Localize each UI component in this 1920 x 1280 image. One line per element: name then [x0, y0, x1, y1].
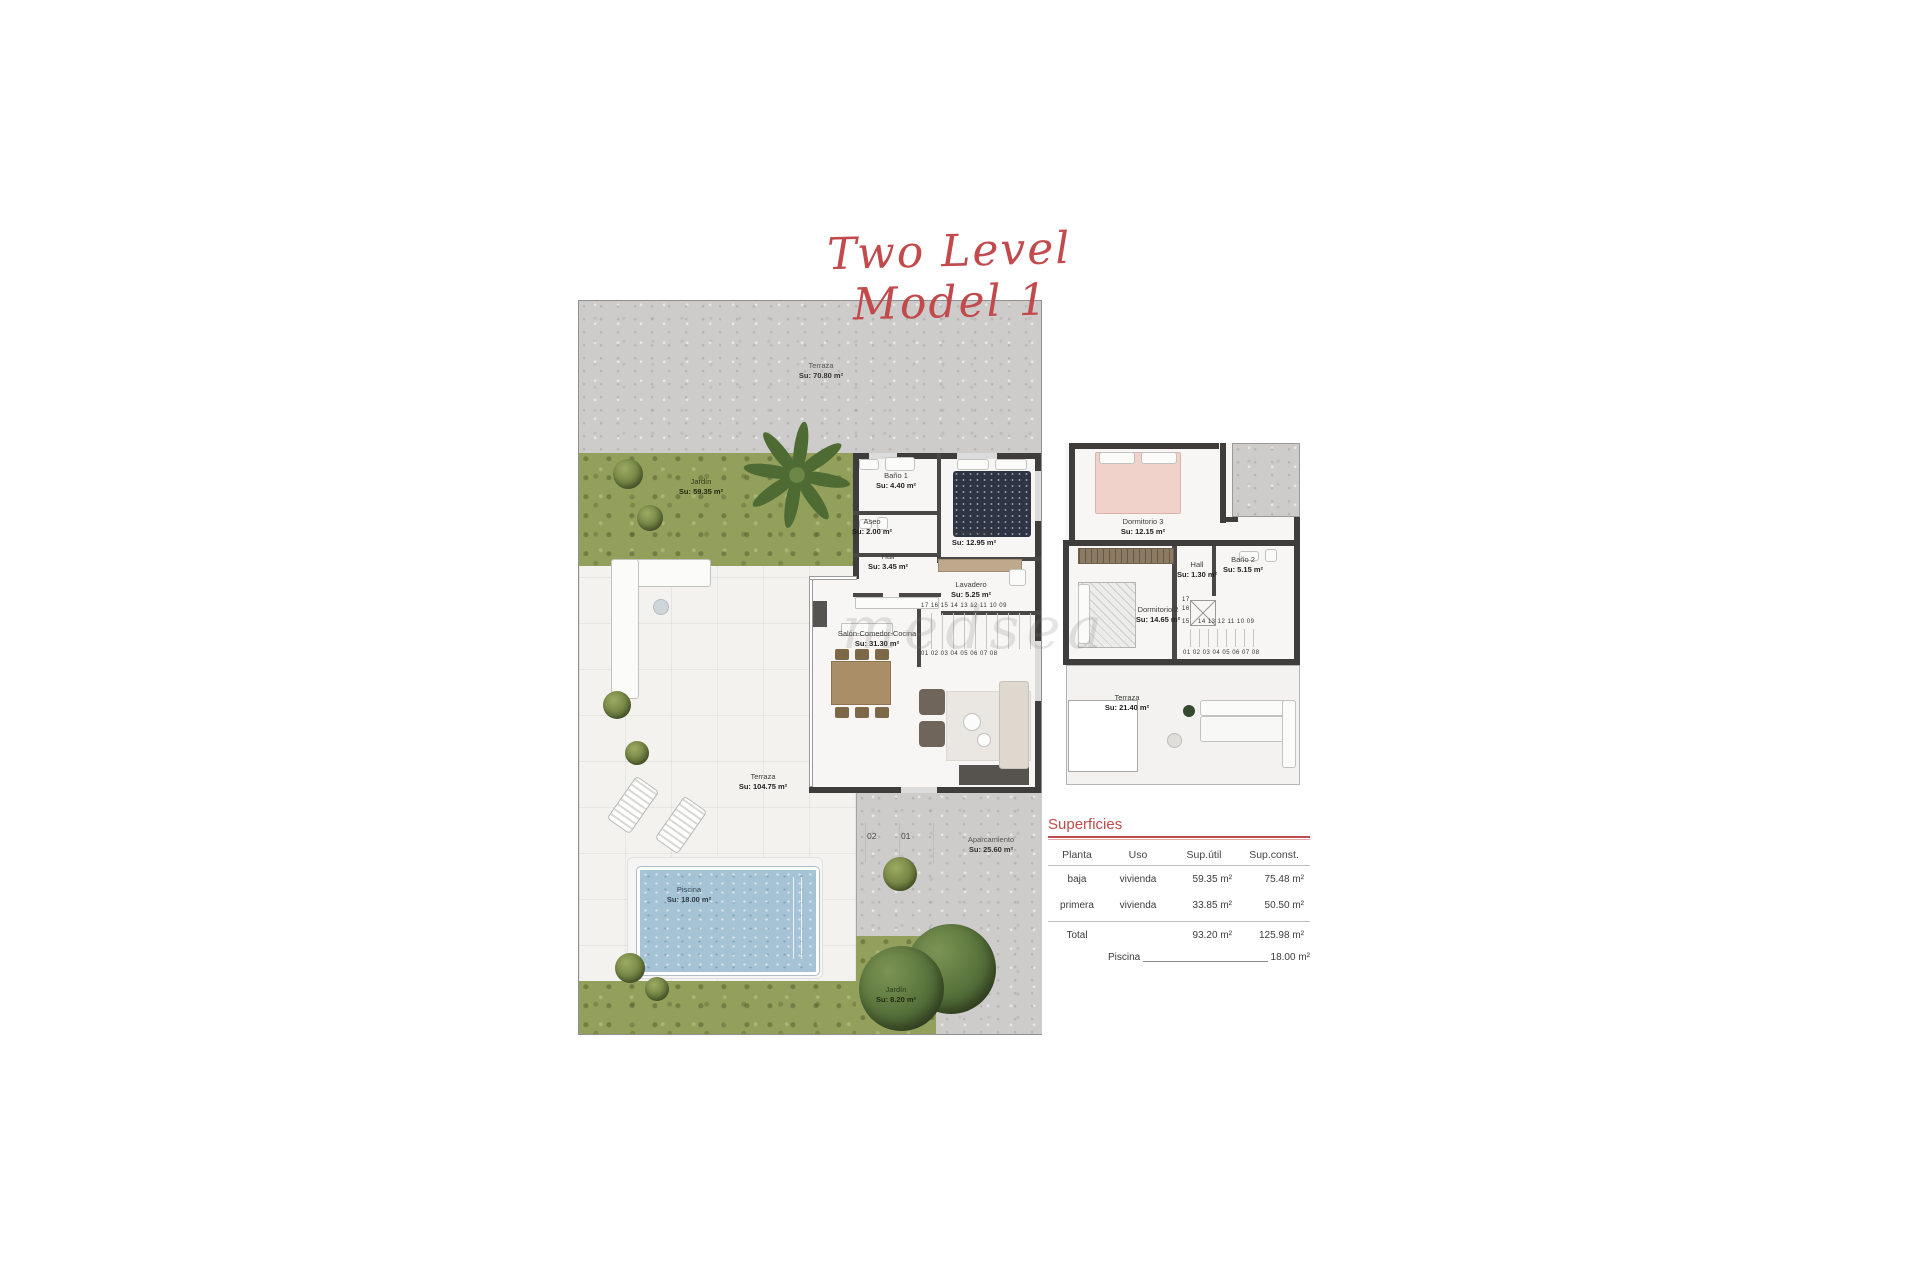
side-table — [1167, 733, 1182, 748]
partition-wall — [853, 511, 941, 515]
bush — [603, 691, 631, 719]
armchair — [919, 689, 945, 715]
table-rule — [1048, 836, 1310, 838]
pool-step-line — [793, 877, 794, 959]
entry-door — [901, 787, 937, 793]
bush — [625, 741, 649, 765]
cell-sup-util: 33.85 m² — [1170, 892, 1238, 918]
coffee-table — [963, 713, 981, 731]
pillow — [1141, 452, 1177, 464]
room-label-terraza2: TerrazaSu: 21.40 m² — [1079, 693, 1175, 713]
col-header-sup-const: Sup.const. — [1238, 846, 1310, 866]
pillow — [957, 459, 989, 470]
total-row: Total 93.20 m² 125.98 m² — [1048, 922, 1310, 941]
dining-table — [831, 661, 891, 705]
outdoor-sofa — [1282, 700, 1296, 768]
staircase — [1182, 629, 1260, 647]
sliding-glass-door — [809, 576, 857, 580]
room-label-aseo: AseoSu: 2.00 m² — [841, 517, 903, 537]
bush — [637, 505, 663, 531]
room-label-salon: Salón-Comedor-CocinaSu: 31.30 m² — [817, 629, 937, 649]
chair — [835, 707, 849, 718]
ff-roof-patch — [1232, 443, 1300, 517]
cell-sup-const: 50.50 m² — [1238, 892, 1310, 918]
piscina-value: 18.00 m² — [1271, 952, 1310, 963]
armchair — [919, 721, 945, 747]
window — [1035, 641, 1041, 701]
col-header-uso: Uso — [1106, 846, 1170, 866]
page-title: Two Level Model 1 — [769, 221, 1132, 332]
wardrobe — [1078, 548, 1174, 564]
outdoor-sofa — [611, 559, 639, 699]
pillow — [1099, 452, 1135, 464]
wall — [1069, 443, 1075, 546]
bush — [613, 459, 643, 489]
room-label-bano1: Baño 1Su: 4.40 m² — [856, 471, 936, 491]
piscina-underline — [1143, 951, 1267, 962]
bush — [615, 953, 645, 983]
room-label-terraza-main: TerrazaSu: 104.75 m² — [703, 772, 823, 792]
piscina-row: Piscina 18.00 m² — [1108, 951, 1310, 963]
wall — [1294, 517, 1300, 665]
stair-numbers-bottom: 01 02 03 04 05 06 07 08 — [921, 651, 1033, 657]
col-header-planta: Planta — [1048, 846, 1106, 866]
total-sup-const: 125.98 m² — [1238, 930, 1310, 941]
bush — [645, 977, 669, 1001]
parking-space-number: 01 — [901, 831, 910, 841]
bush — [883, 857, 917, 891]
chair — [875, 707, 889, 718]
bathtub — [885, 457, 915, 471]
side-table — [653, 599, 669, 615]
surface-table-title: Superficies — [1048, 816, 1310, 836]
surface-table-grid: Planta Uso Sup.útil Sup.const. baja vivi… — [1048, 846, 1310, 918]
room-label-jardin2: JardínSu: 8.20 m² — [856, 985, 936, 1005]
floorplan-sheet: Two Level Model 1 medsea 02 01 — [0, 0, 1920, 1280]
plant-pot — [1183, 705, 1195, 717]
palm-tree — [741, 419, 853, 531]
wall — [1063, 540, 1069, 665]
room-label-terraza-top: TerrazaSu: 70.80 m² — [761, 361, 881, 381]
wall — [1220, 517, 1238, 522]
coffee-table — [977, 733, 991, 747]
cell-planta: baja — [1048, 866, 1106, 892]
total-sup-util: 93.20 m² — [1170, 930, 1238, 941]
chair — [855, 707, 869, 718]
col-header-sup-util: Sup.útil — [1170, 846, 1238, 866]
chair — [835, 649, 849, 660]
ground-floor-plan: 02 01 17 16 15 14 13 12 11 10 09 01 0 — [578, 300, 1042, 1035]
chair — [875, 649, 889, 660]
cell-sup-util: 59.35 m² — [1170, 866, 1238, 892]
sun-lounger — [607, 776, 660, 835]
surface-table: Superficies Planta Uso Sup.útil Sup.cons… — [1048, 816, 1310, 963]
stair-numbers-mid: 14 13 12 11 10 09 — [1198, 619, 1256, 625]
pillow — [1078, 584, 1090, 644]
parking-divider-line — [865, 823, 866, 863]
wall — [1063, 540, 1300, 546]
cell-planta: primera — [1048, 892, 1106, 918]
sink — [859, 459, 879, 470]
wall — [1220, 443, 1226, 523]
wall — [1063, 659, 1300, 665]
sun-lounger — [655, 796, 708, 855]
parking-divider-line — [933, 823, 934, 863]
parking-space-number: 02 — [867, 831, 876, 841]
pool — [637, 867, 819, 975]
pillow — [995, 459, 1027, 470]
sofa — [999, 681, 1029, 769]
total-label: Total — [1048, 930, 1106, 941]
room-label-dormitorio1: Dormitorio 1Su: 12.95 m² — [934, 528, 1014, 548]
room-label-bano2: Baño 2Su: 5.15 m² — [1210, 555, 1276, 575]
stair-numbers-bottom: 01 02 03 04 05 06 07 08 — [1183, 650, 1253, 656]
room-label-hall: HallSu: 3.45 m² — [858, 552, 918, 572]
stair-number: 17 — [1182, 597, 1190, 603]
room-label-aparcamiento: AparcamientoSu: 25.60 m² — [941, 835, 1041, 855]
piscina-label: Piscina — [1108, 952, 1140, 963]
room-label-lavadero: LavaderoSu: 5.25 m² — [931, 580, 1011, 600]
cell-uso: vivienda — [1106, 892, 1170, 918]
fridge — [813, 601, 827, 627]
first-floor-plan: 17 16 15 14 13 12 11 10 09 01 02 03 04 0… — [1063, 443, 1302, 788]
room-label-dormitorio3: Dormitorio 3Su: 12.15 m² — [1095, 517, 1191, 537]
window — [1035, 471, 1041, 521]
wall — [1069, 443, 1219, 449]
room-label-dormitorio2: Dormitorio 2Su: 14.65 m² — [1115, 605, 1201, 625]
stair-numbers-top: 17 16 15 14 13 12 11 10 09 — [921, 603, 1035, 609]
room-label-piscina: PiscinaSu: 18.00 m² — [641, 885, 737, 905]
staircase — [921, 613, 1035, 649]
room-label-jardin: JardínSu: 59.35 m² — [651, 477, 751, 497]
garden-bottom-band — [579, 981, 856, 1034]
pool-step-line — [801, 877, 802, 959]
washing-machine — [1009, 569, 1026, 586]
cell-sup-const: 75.48 m² — [1238, 866, 1310, 892]
chair — [855, 649, 869, 660]
cell-uso: vivienda — [1106, 866, 1170, 892]
table-rule — [1048, 839, 1310, 840]
